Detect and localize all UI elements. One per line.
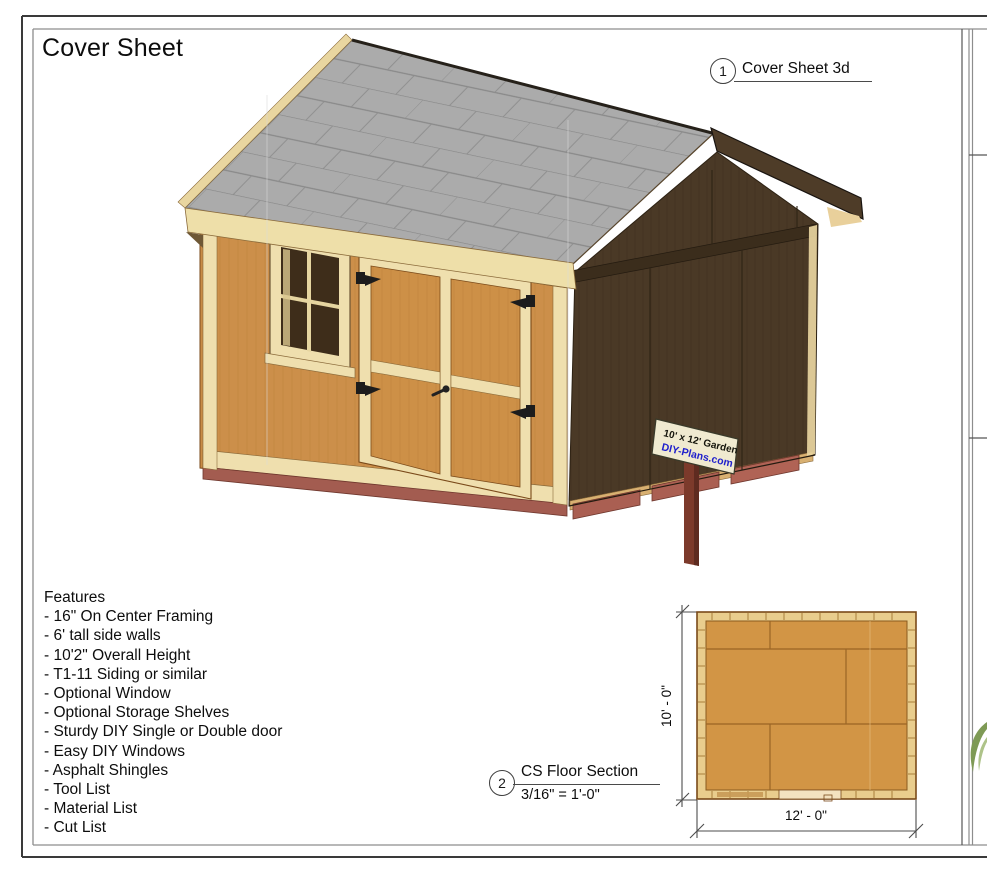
leaf-logo-partial	[971, 722, 987, 772]
feature-item: - Material List	[44, 799, 282, 818]
title-block-border	[962, 29, 987, 845]
feature-item: - T1-11 Siding or similar	[44, 665, 282, 684]
feature-item: - Sturdy DIY Single or Double door	[44, 722, 282, 741]
callout-number: 1	[710, 58, 736, 84]
feature-item: - Optional Storage Shelves	[44, 703, 282, 722]
shed-double-doors	[356, 252, 535, 499]
features-heading: Features	[44, 588, 282, 607]
shed-window	[265, 234, 355, 378]
callout-cs-floor-section: 2 CS Floor Section 3/16" = 1'-0"	[489, 763, 660, 803]
floor-plan-view: 10' - 0" 12' - 0"	[659, 605, 923, 838]
dimension-label-height: 10' - 0"	[659, 685, 674, 727]
feature-item: - Optional Window	[44, 684, 282, 703]
feature-item: - Cut List	[44, 818, 282, 837]
feature-item: - Tool List	[44, 780, 282, 799]
callout-cover-sheet-3d: 1 Cover Sheet 3d	[710, 58, 872, 84]
page-title: Cover Sheet	[42, 34, 183, 63]
callout-number: 2	[489, 770, 515, 796]
feature-item: - 10'2" Overall Height	[44, 646, 282, 665]
floor-deck	[697, 612, 916, 801]
callout-label: CS Floor Section	[513, 763, 660, 785]
dimension-label-width: 12' - 0"	[785, 808, 827, 823]
callout-scale: 3/16" = 1'-0"	[513, 785, 660, 803]
feature-item: - Asphalt Shingles	[44, 761, 282, 780]
plan-sheet: 10' x 12' Garden DIY-Plans.com 10' - 0" …	[0, 0, 987, 881]
features-list: Features - 16" On Center Framing - 6' ta…	[44, 588, 282, 838]
feature-item: - 16" On Center Framing	[44, 607, 282, 626]
feature-item: - 6' tall side walls	[44, 626, 282, 645]
shed-3d-view: 10' x 12' Garden DIY-Plans.com	[178, 34, 863, 566]
feature-item: - Easy DIY Windows	[44, 742, 282, 761]
callout-label: Cover Sheet 3d	[734, 60, 872, 82]
